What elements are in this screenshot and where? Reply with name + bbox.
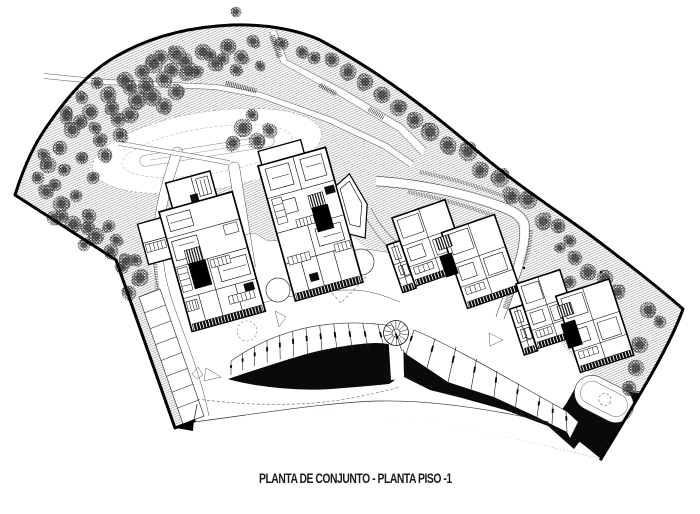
svg-text:PLANTA DE CONJUNTO - PLANTA PI: PLANTA DE CONJUNTO - PLANTA PISO -1	[259, 470, 452, 486]
